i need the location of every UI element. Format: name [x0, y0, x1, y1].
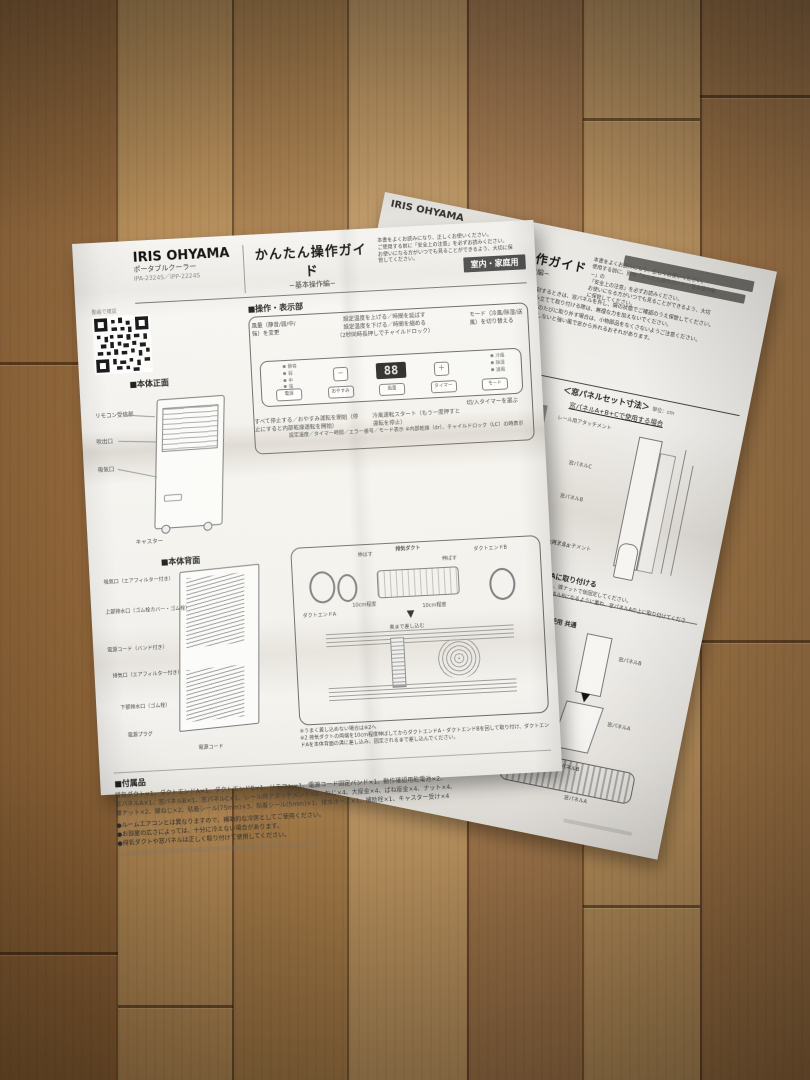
label-cord-bottom: 電源コード — [198, 744, 223, 752]
duct-section: 伸ばす 排気ダクト 伸ばす ダクトエンドB 10cm程度 10cm程度 ダクトエ… — [290, 535, 551, 758]
callout-temperature: 設定温度を上げる／時間を延ばす 設定温度を下げる／時間を縮める （2秒同時長押し… — [319, 309, 450, 340]
label-rail-attachment: レール用アタッチメント — [557, 414, 612, 432]
label-panel-a-side: 窓パネルA — [607, 721, 631, 733]
label-air-intake: 吸気口 — [98, 465, 115, 474]
indicator-dot — [283, 372, 286, 375]
callout-timer: 切/入タイマーを選ぶ — [466, 396, 518, 407]
indicator-dot — [490, 354, 493, 357]
duct-ring — [337, 573, 358, 602]
qr-block: 動画で確認 — [91, 307, 153, 379]
exhaust-duct-drawing — [376, 566, 459, 598]
leader-line — [118, 469, 157, 478]
timer-button: タイマー — [430, 380, 457, 393]
mode-indicators: 冷風 除湿 送風 — [490, 354, 505, 375]
label-intake: 吸気口（エアフィルター付き） — [104, 576, 170, 586]
indicator-dot — [284, 385, 287, 388]
label-duct-end-b: ダクトエンドB — [473, 543, 507, 552]
callout-fan: 風量（静音/弱/中/強）を変更 — [251, 319, 304, 338]
duct-coil — [435, 637, 483, 679]
receiver-window — [164, 493, 182, 501]
window-install-drawing — [326, 621, 517, 701]
qr-code-icon — [92, 314, 153, 375]
guide-title: かんたん操作ガイド — [251, 238, 371, 282]
floor-seam — [700, 640, 810, 643]
caster-wheel — [203, 521, 212, 531]
back-view-heading: ■本体背面 — [160, 550, 290, 568]
label-air-outlet: 吹出口 — [96, 437, 113, 446]
label-caster: キャスター — [135, 536, 163, 545]
indicator-dot — [283, 378, 286, 381]
power-button: 電源 — [276, 388, 303, 401]
label-10cm-right: 10cm程度 — [422, 601, 446, 609]
operation-guide-sheet: IRIS OHYAMA ポータブルクーラー IPA-2324S／IPP-2224… — [72, 220, 562, 795]
label-extend-left: 伸ばす — [357, 550, 372, 558]
caster-wheel — [161, 524, 170, 534]
label-panel-b-2: 窓パネルB — [618, 656, 642, 668]
label-10cm-left: 10cm程度 — [352, 600, 376, 608]
label-power-cord: 電源コード（バンド付き） — [107, 644, 173, 654]
back-view-section: ■本体背面 吸気口（エアフィルター付き） 上部排水口（ゴム栓カバー・ゴム栓） 電… — [102, 548, 301, 768]
temp-down-button: − — [333, 367, 349, 382]
sleep-button: おやすみ — [327, 385, 354, 398]
lower-grille — [186, 664, 244, 722]
front-view-section: 動画で確認 — [89, 302, 259, 552]
temperature-display: 88 — [376, 362, 407, 380]
indicator-dot — [491, 361, 494, 364]
panel-b-drawing — [575, 633, 612, 697]
unit-back-illustration — [179, 563, 259, 731]
leader-line — [118, 441, 156, 443]
window-frame-top — [326, 621, 515, 647]
label-upper-drain: 上部排水口（ゴム栓カバー・ゴム栓） — [105, 606, 171, 616]
document-code — [563, 818, 632, 836]
down-arrow-icon: ▼ — [407, 608, 415, 619]
mode-button: モード — [482, 377, 509, 390]
label-power-plug: 電源プラグ — [128, 731, 153, 739]
callout-mode: モード（冷風/除湿/送風）を切り替える — [469, 307, 526, 326]
unit-front-illustration — [154, 395, 224, 530]
label-extend-right: 伸ばす — [442, 554, 457, 562]
floor-seam — [0, 952, 118, 955]
fan-button: 風量 — [379, 383, 406, 396]
indicator-dot — [283, 365, 286, 368]
floor-seam — [583, 905, 700, 908]
floor-seam — [118, 1005, 233, 1008]
floor-seam — [700, 95, 810, 98]
label-panel-b: 窓パネルB — [559, 492, 583, 504]
floor-seam — [583, 118, 700, 121]
dimension-line — [670, 466, 693, 576]
label-panel-c: 窓パネルC — [568, 459, 592, 471]
duct-end-b-drawing — [489, 567, 517, 600]
label-exhaust-duct: 排気ダクト — [395, 544, 420, 552]
upper-grille — [186, 572, 244, 648]
front-vent — [162, 404, 219, 452]
guide-title-block: かんたん操作ガイド −基本操作編− — [251, 238, 371, 292]
indicator-dot — [491, 368, 494, 371]
control-panel-diagram: 風量（静音/弱/中/強）を変更 設定温度を上げる／時間を延ばす 設定温度を下げる… — [248, 302, 535, 454]
label-exhaust: 排気口（エアフィルター付き） — [113, 670, 177, 680]
front-view-drawing: リモコン受信部 吹出口 吸気口 キャスター — [94, 386, 260, 552]
window-frame-bottom — [328, 675, 517, 701]
indoor-use-badge: 室内・家庭用 — [463, 254, 526, 272]
duct-assembly-diagram: 伸ばす 排気ダクト 伸ばす ダクトエンドB 10cm程度 10cm程度 ダクトエ… — [290, 535, 549, 726]
label-duct-end-a: ダクトエンドA — [303, 610, 337, 619]
control-panel-section: ■操作・表示部 風量（静音/弱/中/強）を変更 設定温度を上げる／時間を延ばす … — [247, 287, 539, 543]
duct-end-a-drawing — [308, 570, 336, 603]
label-lower-drain: 下部排水口（ゴム栓） — [120, 702, 182, 711]
divider — [242, 245, 246, 293]
temp-up-button: ＋ — [434, 361, 450, 376]
brand-block: IRIS OHYAMA ポータブルクーラー IPA-2324S／IPP-2224… — [132, 246, 236, 284]
